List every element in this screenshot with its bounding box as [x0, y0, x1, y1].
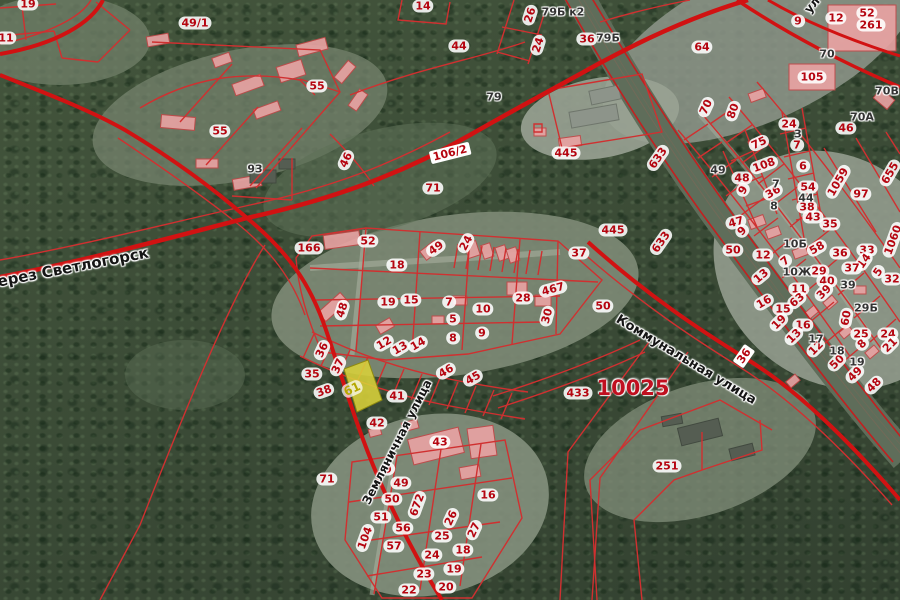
- building-number-label: 44: [798, 192, 813, 205]
- parcel-number-label[interactable]: 19: [17, 0, 38, 11]
- building-number-label: 8: [770, 200, 778, 213]
- parcel-number-label[interactable]: 41: [386, 390, 407, 403]
- building-number-label: 7: [772, 178, 780, 191]
- parcel-number-label[interactable]: 71: [422, 182, 443, 195]
- building-number-label: 79: [486, 91, 501, 104]
- parcel-number-label[interactable]: 35: [301, 368, 322, 381]
- parcel-number-label[interactable]: 19: [443, 563, 464, 576]
- parcel-number-label[interactable]: 20: [435, 581, 456, 594]
- parcel-number-label[interactable]: 8: [446, 332, 460, 345]
- parcel-number-label[interactable]: 14: [412, 0, 433, 13]
- parcel-number-label[interactable]: 12: [825, 12, 846, 25]
- parcel-number-label[interactable]: 37: [841, 262, 862, 275]
- parcel-number-label[interactable]: 18: [452, 544, 473, 557]
- cadastral-map-canvas[interactable]: 191149/155551444262436649125226146445716…: [0, 0, 900, 600]
- parcel-number-label[interactable]: 261: [857, 19, 886, 32]
- parcel-number-label[interactable]: 32: [881, 273, 900, 286]
- building-number-label: 70: [819, 48, 834, 61]
- parcel-number-label[interactable]: 50: [722, 244, 743, 257]
- parcel-number-label[interactable]: 445: [599, 224, 628, 237]
- building-number-label: 39: [840, 279, 855, 292]
- parcel-number-label[interactable]: 105: [798, 71, 827, 84]
- parcel-number-label[interactable]: 24: [421, 549, 442, 562]
- building-number-label: 49: [710, 164, 725, 177]
- parcel-number-label[interactable]: 44: [448, 40, 469, 53]
- parcel-number-label[interactable]: 28: [512, 292, 533, 305]
- parcel-number-label[interactable]: 43: [429, 436, 450, 449]
- parcel-number-label[interactable]: 71: [316, 473, 337, 486]
- building-number-label: 29Б: [854, 302, 878, 315]
- parcel-number-label[interactable]: 166: [295, 242, 324, 255]
- parcel-number-label[interactable]: 36: [829, 247, 850, 260]
- parcel-number-label[interactable]: 12: [752, 249, 773, 262]
- parcel-number-label[interactable]: 10: [472, 303, 493, 316]
- parcel-number-label[interactable]: 51: [370, 511, 391, 524]
- parcel-number-label[interactable]: 49: [390, 477, 411, 490]
- parcel-number-label[interactable]: 7: [442, 296, 456, 309]
- building-number-label: 70В: [875, 85, 899, 98]
- building-number-label: 3: [794, 128, 802, 141]
- parcel-number-label[interactable]: 64: [691, 41, 712, 54]
- parcel-number-label[interactable]: 445: [552, 147, 581, 160]
- parcel-number-label[interactable]: 16: [477, 489, 498, 502]
- parcel-number-label[interactable]: 42: [366, 417, 387, 430]
- parcel-number-label[interactable]: 22: [398, 584, 419, 597]
- parcel-number-label[interactable]: 50: [381, 493, 402, 506]
- parcel-number-label[interactable]: 9: [475, 327, 489, 340]
- parcel-number-label[interactable]: 50: [592, 300, 613, 313]
- building-number-label: 79Б к2: [542, 6, 585, 19]
- parcel-number-label[interactable]: 6: [796, 160, 810, 173]
- building-number-label: 93: [247, 163, 262, 176]
- building-number-label: 18: [829, 345, 844, 358]
- parcel-number-label[interactable]: 48: [731, 172, 752, 185]
- parcel-number-label[interactable]: 15: [400, 294, 421, 307]
- area-number-label[interactable]: 10025: [596, 376, 669, 400]
- parcel-number-label[interactable]: 18: [386, 259, 407, 272]
- parcel-number-label[interactable]: 57: [383, 540, 404, 553]
- parcel-number-label[interactable]: 9: [791, 15, 805, 28]
- building-number-label: 10Б: [783, 238, 807, 251]
- parcel-number-label[interactable]: 55: [306, 80, 327, 93]
- parcel-number-label[interactable]: 23: [413, 568, 434, 581]
- parcel-number-label[interactable]: 5: [446, 313, 460, 326]
- parcel-number-label[interactable]: 19: [377, 296, 398, 309]
- parcel-number-label[interactable]: 97: [850, 188, 871, 201]
- building-number-label: 10Ж: [783, 266, 812, 279]
- parcel-number-label[interactable]: 37: [568, 247, 589, 260]
- parcel-number-label[interactable]: 251: [653, 460, 682, 473]
- parcel-number-label[interactable]: 433: [564, 387, 593, 400]
- parcel-number-label[interactable]: 49/1: [179, 17, 212, 30]
- parcel-number-label[interactable]: 11: [0, 32, 17, 45]
- building-number-label: 79Б: [596, 32, 620, 45]
- building-number-label: 19: [849, 356, 864, 369]
- parcel-number-label[interactable]: 25: [431, 530, 452, 543]
- parcel-number-label[interactable]: 52: [357, 235, 378, 248]
- parcel-number-label[interactable]: 56: [392, 522, 413, 535]
- parcel-number-label[interactable]: 55: [209, 125, 230, 138]
- parcel-number-label[interactable]: 35: [819, 218, 840, 231]
- building-number-label: 17: [808, 333, 823, 346]
- parcel-number-label[interactable]: 36: [576, 33, 597, 46]
- building-number-label: 70А: [850, 111, 874, 124]
